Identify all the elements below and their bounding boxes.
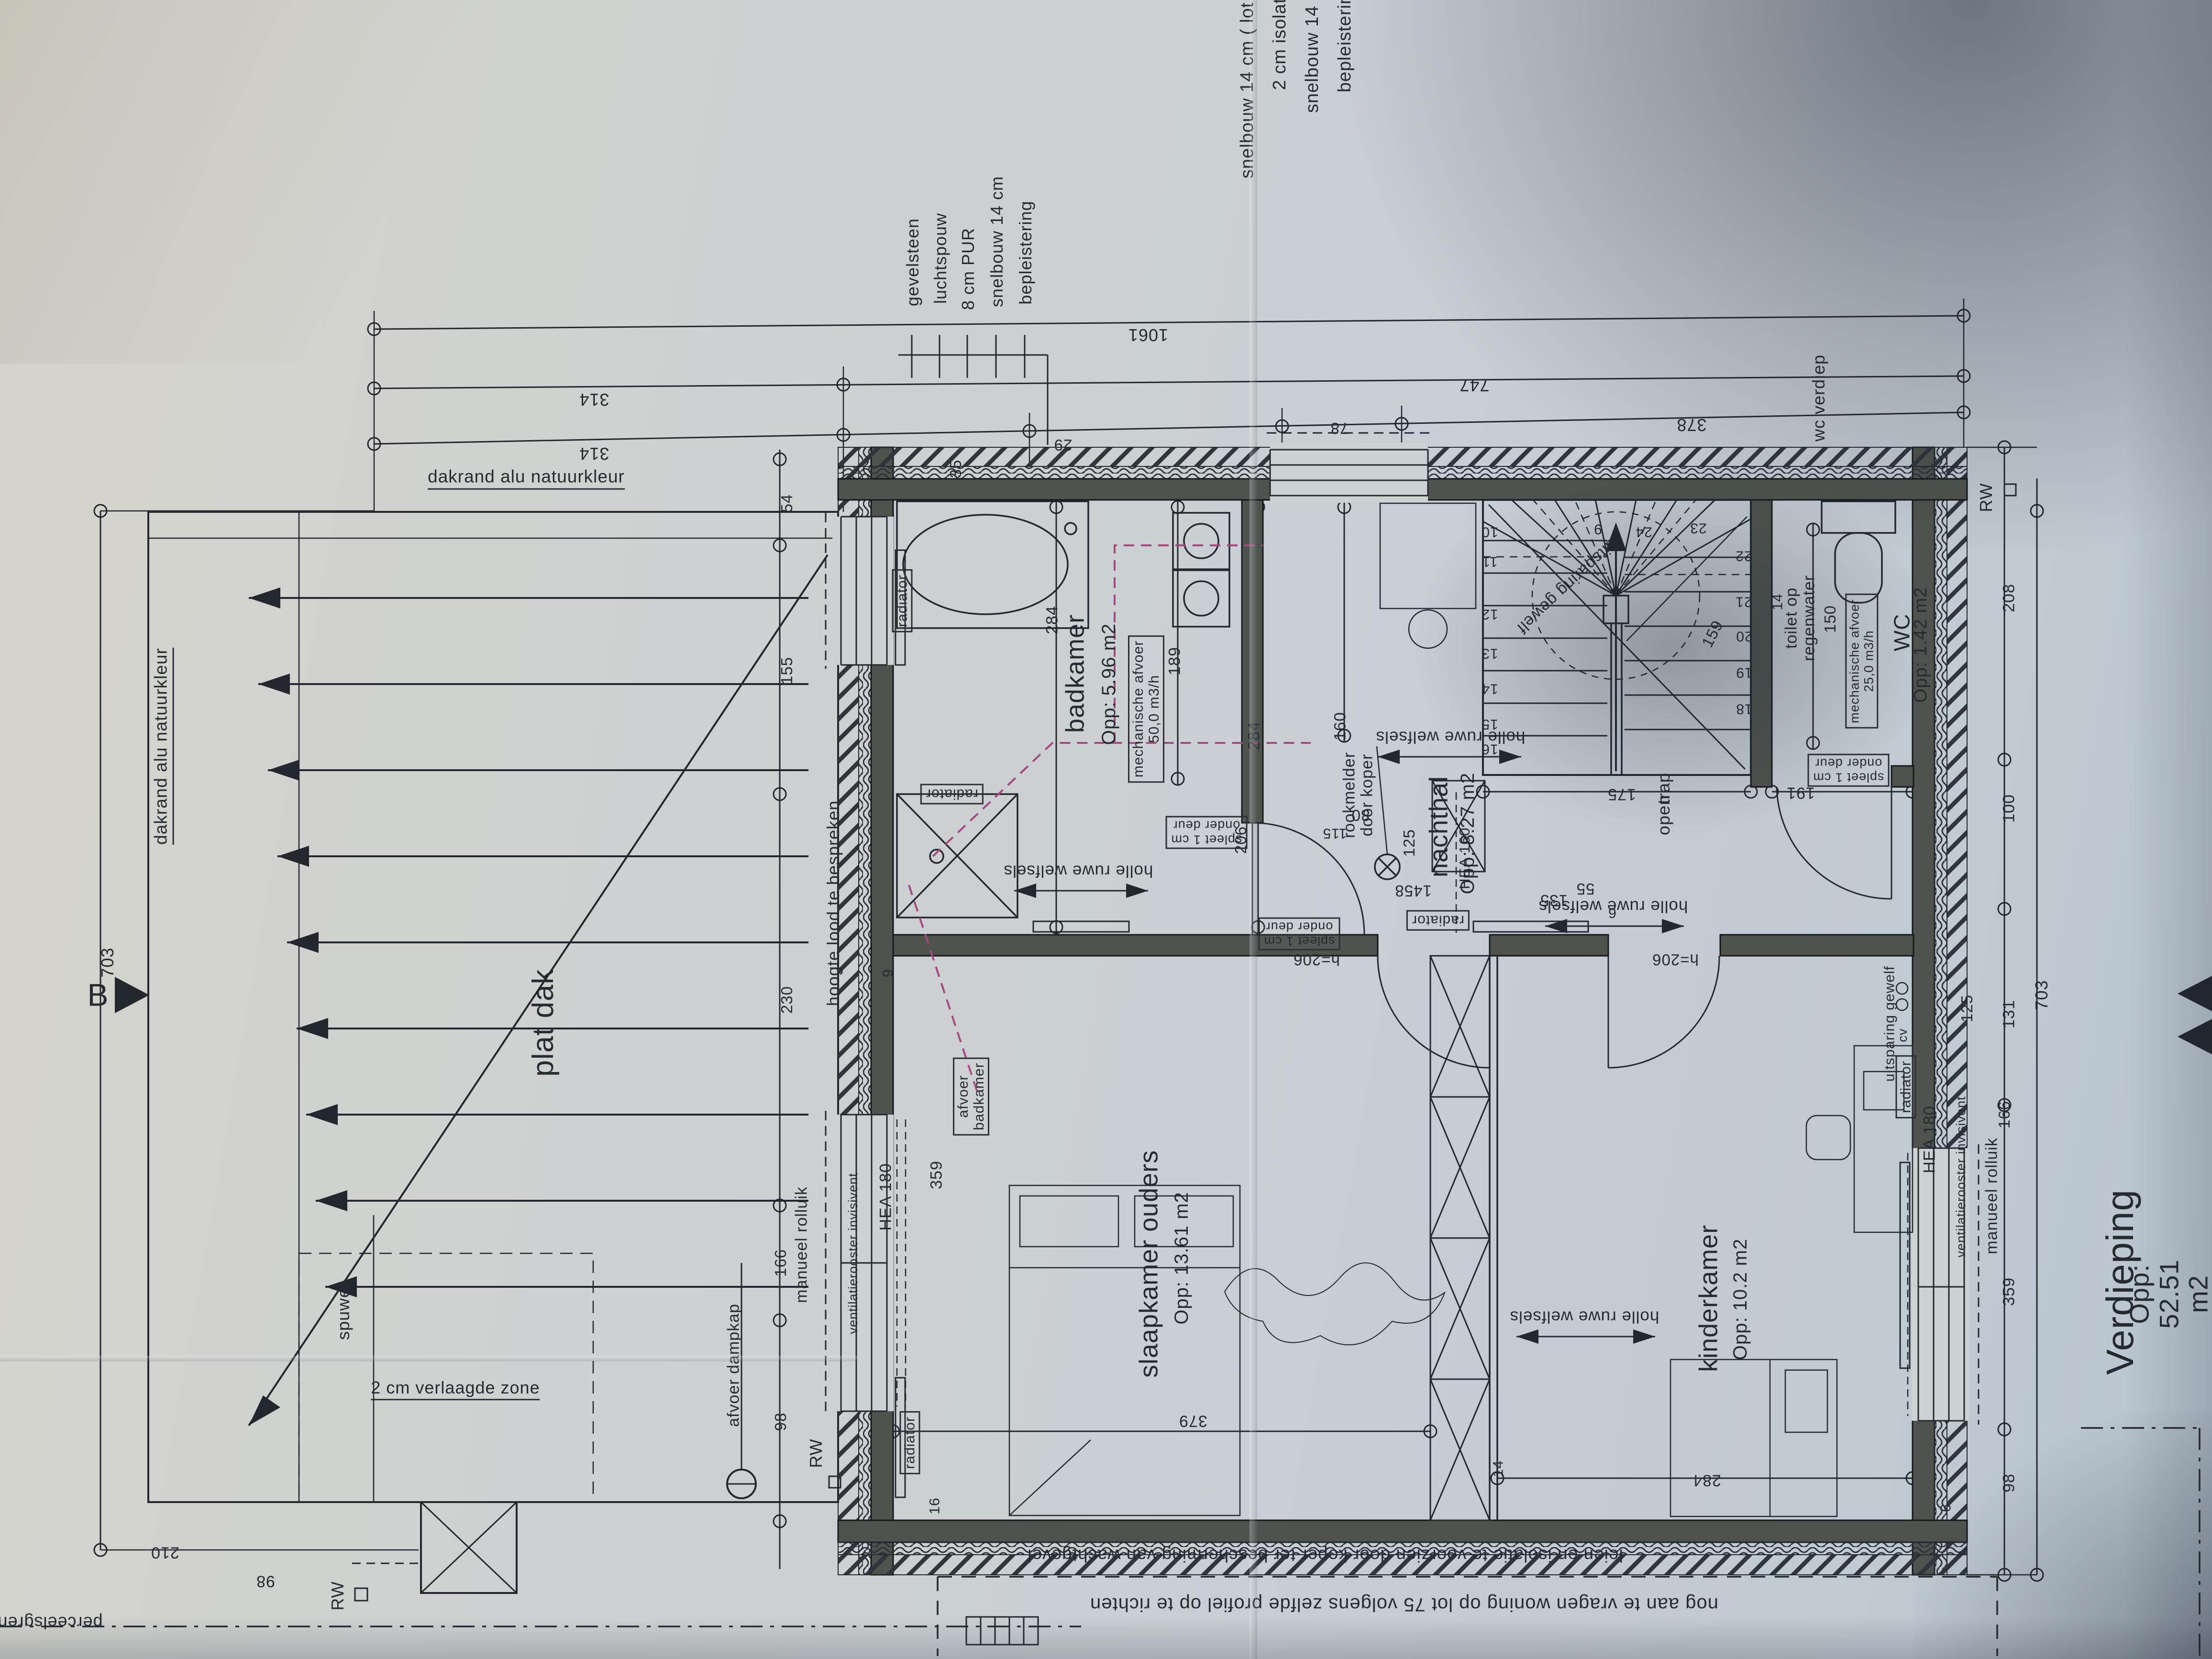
plan-label: 155 [778,657,796,685]
plan-label: 314 [579,390,609,409]
stair-tread-number: 9 [1593,521,1602,537]
plan-label: 359 [2000,1277,2018,1306]
plan-label: manueel rolluik [793,1186,810,1303]
plan-label: 54 [778,494,796,513]
plan-label: radiator [892,569,913,632]
plan-label: 125 [1401,829,1418,857]
plan-label: spleet 1 cm onder deur [1258,917,1340,950]
note-lot75: nog aan te vragen woning op lot 75 volge… [1090,1594,1718,1615]
plan-label: 2 cm isolat [1270,0,1290,90]
room-label-badkamer: badkamer [1061,614,1089,733]
plan-label: 189 [1166,647,1183,675]
plan-label: snelbouw 14 cm ( lot 7 [1238,0,1258,178]
stair-tread-number: 20 [1736,629,1752,644]
section-marker-b-label: B [87,978,109,1013]
plan-label: gevelsteen [903,218,922,306]
stair-tread-number: 24 [1635,524,1652,540]
plan-label: 208 [2000,584,2018,612]
plan-label: 379 [1179,1412,1207,1429]
plan-label: 210 [151,1543,179,1561]
stair-tread-number: 10 [1481,524,1498,540]
stair-tread-number: 22 [1735,548,1752,564]
plan-label: 115 [1323,826,1347,841]
plan-label: afvoer dampkap [725,1304,742,1427]
plan-label: mechanische afvoer 50,0 m3/h [1128,635,1164,783]
plan-label: 80 [1351,807,1370,824]
plan-label: holle ruwe welfsels [1004,862,1153,880]
plan-label: dakrand alu natuurkleur [428,467,625,490]
plan-label: 98 [2000,1473,2018,1493]
plan-label: 160 [1331,712,1349,741]
plan-label: Opp: 10.2 m2 [1730,1239,1751,1360]
plan-label: luchtspouw [931,213,950,304]
plan-label: h=206 [1652,951,1699,968]
plan-label: 29 [1054,436,1073,453]
stair-tread-number: 23 [1690,520,1706,536]
plan-label: bepleisterin [1335,0,1355,92]
plan-label: holle ruwe welfsels [1376,728,1526,746]
plan-label: 747 [1459,376,1489,395]
room-label-slaapkamer: slaapkamer ouders [1135,1150,1163,1378]
plan-label: hoogte lood te bespreken [824,800,843,1006]
plan-label: 230 [778,986,796,1014]
plan-label: 314 [579,444,609,463]
plan-label: bepleistering [1016,200,1035,304]
plan-label: spleet 1 cm onder deur [1807,753,1889,786]
room-label-nachthal: nachthal [1425,776,1453,877]
plan-label: 703 [98,947,117,977]
plan-label: dakrand alu natuurkleur [152,648,174,845]
plan-label: snelbouw 14 c [1303,0,1323,113]
plan-label: radiator [1896,1055,1916,1118]
plan-label: 150 [1822,605,1839,633]
plan-label: radiator [1406,910,1470,931]
plan-label: radiator [920,784,984,805]
plan-label: 284 [1043,606,1061,634]
plan-label: 9 [880,969,896,977]
plan-label: h=206 [1293,951,1340,968]
stair-tread-number: 11 [1482,554,1497,570]
plan-label: Opp: 5.96 m2 [1098,623,1119,745]
plan-label: RW [807,1438,826,1468]
plan-label: 98 [256,1572,275,1590]
plan-label: ventilatierooster invisivent [1954,1096,1969,1257]
plan-labels: VerdiepingOpp: 52.51 m2Bperceelsgrensnog… [0,0,2212,1659]
note-wachtgevel: leien en isolatie te voorzien door koper… [1027,1542,1623,1565]
plan-label: radiator [900,1411,920,1474]
plan-label: 359 [928,1161,945,1189]
plan-label: RW [1977,483,1996,512]
plan-label: 1061 [1128,325,1168,344]
plan-label: 2 cm verlaagde zone [371,1378,540,1400]
stair-tread-number: 21 [1735,594,1752,610]
plan-label: 166 [1996,1101,2013,1128]
plan-label: 8 cm PUR [959,228,978,310]
plan-label: 6 [1938,1504,1954,1512]
plan-label: 16 [927,1497,943,1514]
plan-label: uitsparing gewelf [1513,535,1621,637]
plan-label: HEA 180 [877,1163,895,1230]
plan-label: HEA 160 [1457,827,1473,889]
plan-label: afvoer badkamer [953,1057,989,1135]
plan-label: 703 [2032,980,2051,1010]
plan-label: holle ruwe welfsels [1538,897,1688,916]
stair-tread-number: 15 [1481,717,1498,732]
plan-label: 131 [2000,1000,2018,1029]
stair-tread-number: 12 [1481,607,1498,622]
plan-label: 159 [1699,618,1727,650]
plan-label: spuwer [334,1282,353,1340]
plan-label: open [1654,795,1673,835]
stair-tread-number: 19 [1736,665,1752,681]
stair-tread-number: 14 [1481,681,1498,697]
plan-label: holle ruwe welfsels [1510,1307,1659,1326]
plan-label: cv [1896,1029,1910,1042]
plan-label: Opp: 1.42 m2 [1911,587,1931,703]
plan-label: 125 [1958,995,1976,1022]
plan-label: 98 [772,1413,789,1431]
plan-label: 284 [1692,1471,1721,1489]
plan-label: 14 [1491,1460,1506,1477]
stair-tread-number: 16 [1481,741,1498,757]
plan-label: 166 [772,1249,789,1277]
floorplan-photo: VerdiepingOpp: 52.51 m2Bperceelsgrensnog… [0,0,2212,1659]
plan-label: 175 [1607,785,1636,803]
plan-label: ventilatierooster invisivent [846,1172,861,1334]
plan-label: 378 [1676,415,1706,434]
plan-label: 284 [1245,721,1263,750]
plan-label: 206 [1232,826,1250,854]
plan-label: Opp: 13.61 m2 [1171,1192,1192,1325]
flat-roof-label: plat dak [527,969,560,1076]
plan-label: toilet op regenwater [1783,575,1819,661]
plan-label: snelbouw 14 cm [987,176,1006,307]
plan-label: 55 [1576,880,1595,897]
plan-label: mechanische afvoer 25,0 m3/h [1845,594,1878,729]
stair-tread-number: 13 [1481,646,1498,662]
plan-label: RW [328,1581,347,1610]
plan-title-area: Opp: 52.51 m2 [2125,1259,2212,1328]
plan-label: manueel rolluik [1983,1138,2001,1254]
plan-label: 1458 [1394,882,1431,899]
room-label-kinderkamer: kinderkamer [1694,1225,1723,1372]
property-line-label: perceelsgrens [0,1613,103,1632]
wc-verdiep-label: wc verdiep [1809,354,1828,442]
plan-label: 35 [947,460,964,478]
plan-label: HEA 180 [1921,1106,1938,1173]
plan-label: 78 [1330,420,1349,437]
stair-tread-number: 18 [1736,701,1752,717]
plan-label: 100 [2000,794,2018,823]
